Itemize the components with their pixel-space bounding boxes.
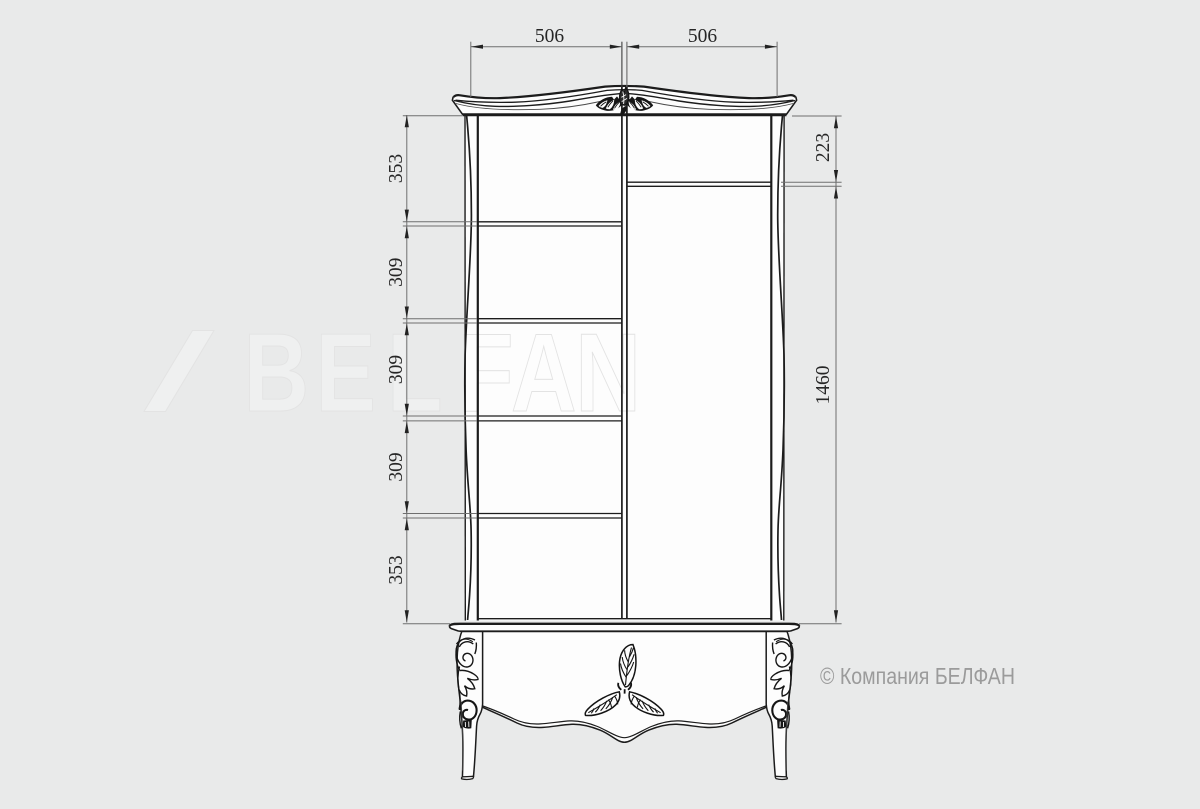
svg-text:506: 506 [535, 26, 565, 47]
svg-text:223: 223 [813, 133, 834, 162]
svg-text:© Компания БЕЛФАН: © Компания БЕЛФАН [820, 663, 1015, 689]
svg-text:309: 309 [386, 258, 407, 287]
svg-text:1460: 1460 [813, 366, 834, 405]
svg-text:353: 353 [386, 555, 407, 584]
svg-text:E: E [315, 310, 376, 435]
svg-text:506: 506 [688, 26, 718, 47]
svg-text:309: 309 [386, 452, 407, 481]
svg-text:353: 353 [386, 154, 407, 183]
svg-text:309: 309 [386, 355, 407, 384]
svg-text:B: B [244, 310, 310, 435]
